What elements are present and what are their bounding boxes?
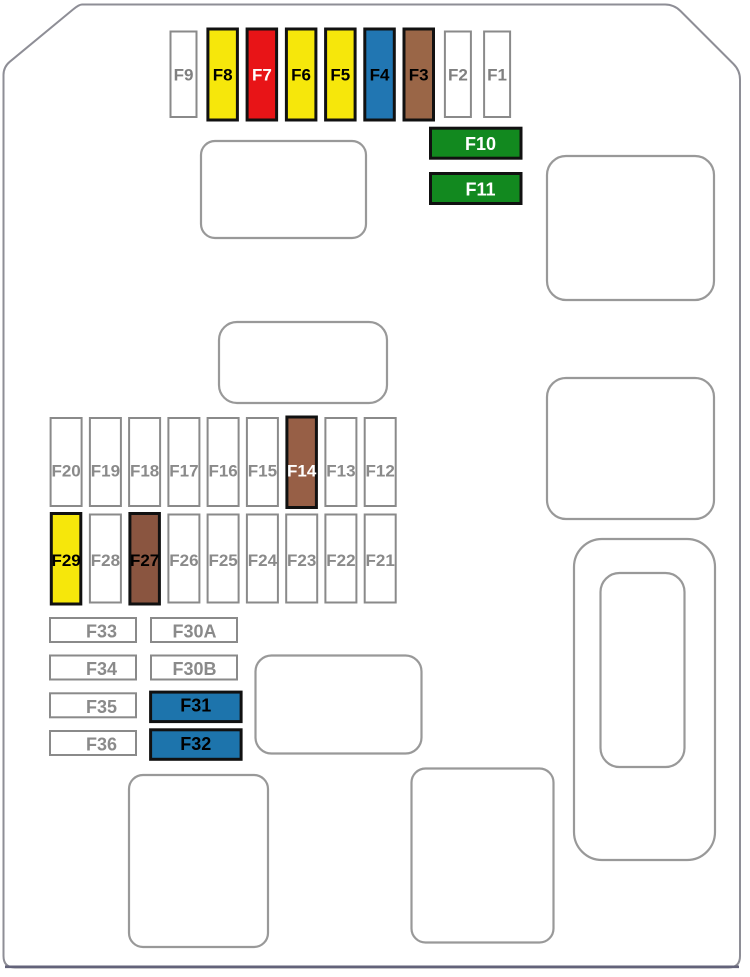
svg-text:F12: F12: [366, 462, 395, 481]
svg-text:F26: F26: [169, 551, 198, 570]
svg-text:F36: F36: [86, 735, 117, 755]
svg-text:F7: F7: [252, 66, 272, 85]
svg-text:F15: F15: [248, 462, 277, 481]
svg-text:F11: F11: [465, 179, 495, 199]
svg-text:F23: F23: [287, 551, 316, 570]
svg-text:F28: F28: [91, 551, 120, 570]
svg-text:F8: F8: [213, 66, 233, 85]
svg-text:F30B: F30B: [172, 659, 216, 679]
svg-text:F6: F6: [291, 66, 311, 85]
svg-text:F22: F22: [326, 551, 355, 570]
svg-text:F17: F17: [169, 462, 198, 481]
svg-text:F34: F34: [86, 659, 117, 679]
svg-text:F29: F29: [51, 551, 80, 570]
svg-text:F33: F33: [86, 622, 117, 642]
svg-text:F16: F16: [208, 462, 237, 481]
svg-text:F21: F21: [366, 551, 395, 570]
svg-text:F14: F14: [287, 462, 317, 481]
svg-text:F35: F35: [86, 697, 117, 717]
svg-text:F27: F27: [130, 551, 159, 570]
svg-text:F18: F18: [130, 462, 159, 481]
svg-text:F32: F32: [180, 734, 211, 754]
svg-text:F31: F31: [180, 696, 211, 716]
svg-text:F9: F9: [174, 66, 194, 85]
svg-text:F10: F10: [465, 134, 496, 154]
svg-text:F2: F2: [448, 66, 468, 85]
svg-text:F3: F3: [409, 66, 429, 85]
svg-text:F4: F4: [370, 66, 390, 85]
svg-text:F19: F19: [91, 462, 120, 481]
svg-text:F13: F13: [326, 462, 355, 481]
svg-text:F20: F20: [51, 462, 80, 481]
svg-text:F1: F1: [487, 66, 507, 85]
svg-text:F5: F5: [330, 66, 350, 85]
svg-text:F30A: F30A: [172, 622, 216, 642]
svg-text:F25: F25: [208, 551, 237, 570]
svg-text:F24: F24: [248, 551, 278, 570]
